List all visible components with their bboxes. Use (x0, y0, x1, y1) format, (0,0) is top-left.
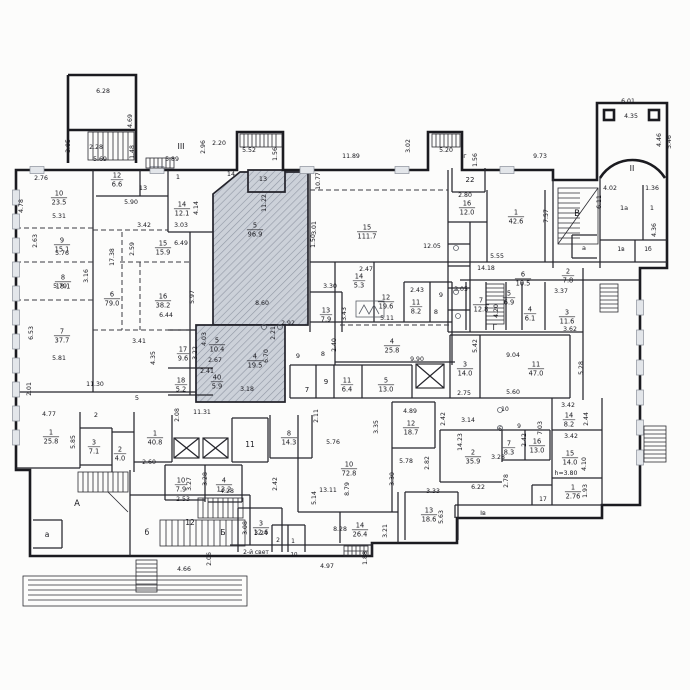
room-number-label: 4 (528, 306, 532, 314)
room-number-label: 7 (507, 440, 511, 448)
dimension-label: 2.92 (281, 320, 295, 327)
mark-label: Г (493, 323, 498, 332)
dimension-label: 2.21 (270, 326, 277, 340)
room-area-label: 6.4 (342, 385, 353, 393)
dimension-label: 3.28 (202, 472, 209, 486)
dimension-label: 14.23 (457, 433, 464, 451)
mark-label: А (74, 499, 80, 509)
dimension-label: 1.36 (645, 185, 659, 192)
room-area-label: 25.8 (385, 346, 400, 354)
room-number-label: 3 (259, 520, 263, 528)
room-number-label: 13 (322, 307, 330, 315)
room-area-label: 8.3 (504, 448, 515, 456)
room-number-label: 17 (179, 346, 187, 354)
mark-label: 22 (466, 176, 475, 184)
dimension-label: 4.14 (193, 201, 200, 215)
mark-label: 2-й свет (243, 549, 269, 556)
room-area-label: 26.4 (353, 530, 368, 538)
dimension-label: 2.08 (174, 408, 181, 422)
dimension-label: 3.42 (137, 222, 151, 229)
dimension-label: 2.47 (359, 266, 373, 273)
dimension-label: 12.05 (423, 243, 441, 250)
room-number-label: 8 (287, 430, 291, 438)
dimension-label: 4.36 (651, 223, 658, 237)
room-area-label: 15.9 (156, 248, 171, 256)
room-area-label: 4.0 (115, 454, 126, 462)
room-number-label: 8 (61, 274, 65, 282)
room-area-label: 9.6 (178, 354, 189, 362)
dimension-label: 5.20 (439, 147, 453, 154)
room-number-label: 1 (514, 209, 518, 217)
dimension-label: 6.53 (28, 326, 35, 340)
dimension-label: 11.31 (193, 409, 211, 416)
room-number-label: 2 (471, 449, 475, 457)
dimension-label: 5.46 (666, 135, 673, 149)
dimension-label: 3.35 (373, 420, 380, 434)
mark-label: 5 (135, 394, 139, 402)
stair-A-icon (78, 472, 128, 512)
dimension-label: 7.57 (543, 209, 550, 223)
dimension-label: 3.05 (65, 139, 72, 153)
room-area-label: 8.2 (411, 307, 422, 315)
mark-label: 8 (321, 350, 325, 358)
elevator-icon (174, 438, 199, 458)
dimension-label: 2.28 (89, 144, 103, 151)
mark-label: 13 (259, 175, 267, 183)
room-number-label: 15 (566, 450, 574, 458)
dimension-label: 3.16 (83, 269, 90, 283)
dimension-label: 3.42 (564, 433, 578, 440)
room-area-label: 19.5 (248, 361, 263, 369)
mark-label: 9 (439, 291, 443, 299)
mark-label: 1а (620, 204, 628, 212)
dimension-label: 2.53 (176, 496, 190, 503)
dimension-label: 9.90 (410, 356, 424, 363)
dimension-label: 4.35 (624, 113, 638, 120)
room-number-label: 14 (355, 273, 363, 281)
room-number-label: 14 (565, 412, 573, 420)
dimension-label: 4.69 (127, 114, 134, 128)
room-area-label: 72.8 (342, 469, 357, 477)
dimension-label: 6.70 (263, 349, 270, 363)
mark-label: Iг (461, 152, 467, 160)
dimension-label: 5.81 (52, 355, 66, 362)
room-area-label: 23.5 (52, 198, 67, 206)
mark-label: В (574, 209, 580, 219)
dimension-label: 4.10 (581, 457, 588, 471)
room-area-label: 42.6 (509, 217, 524, 225)
dimension-label: 4.35 (150, 351, 157, 365)
dimension-label: 3.30 (389, 472, 396, 486)
dimension-label: 13.11 (319, 487, 337, 494)
room-area-label: 38.2 (156, 301, 171, 309)
dimension-label: 1.88 (362, 551, 369, 565)
room-number-label: 10 (55, 190, 63, 198)
dimension-label: 4.02 (603, 185, 617, 192)
dimension-label: 2.44 (583, 412, 590, 426)
mark-label: Iв (480, 509, 486, 517)
dimension-label: 3.02 (405, 139, 412, 153)
room-number-label: 15 (363, 224, 371, 232)
dimension-label: 14.18 (477, 265, 495, 272)
dimension-label: 5.14 (311, 491, 318, 505)
room-number-label: 3 (92, 439, 96, 447)
dimension-label: 4.66 (177, 566, 191, 573)
dimension-label: 2.96 (200, 140, 207, 154)
room-number-label: 7 (60, 328, 64, 336)
stair-right-exterior-icon (644, 426, 666, 462)
dimension-label: 1.93 (582, 484, 589, 498)
mark-label: 12 (185, 518, 195, 527)
dimension-label: 4.28 (220, 488, 234, 495)
dimension-label: 8.79 (344, 482, 351, 496)
dimension-label: 4.89 (403, 408, 417, 415)
mark-label: 10 (501, 406, 509, 413)
mark-label: 17 (539, 496, 547, 503)
mark-label: 1 (650, 204, 654, 212)
dimension-label: 11.22 (261, 194, 268, 212)
dimension-label: 3.30 (323, 283, 337, 290)
room-number-label: 11 (412, 299, 420, 307)
room-area-label: 5.3 (354, 281, 365, 289)
room-number-label: 14 (178, 201, 186, 209)
dimension-label: 3.22 (192, 346, 199, 360)
mark-label: 9 (517, 423, 521, 430)
dimension-label: 2.43 (410, 287, 424, 294)
room-number-label: 6 (521, 271, 525, 279)
room-number-label: 40 (213, 374, 221, 382)
room-area-label: 6.1 (525, 314, 536, 322)
room-area-label: 13.0 (379, 385, 394, 393)
dimension-label: 6.44 (159, 312, 173, 319)
room-number-label: 9 (60, 237, 64, 245)
dimension-label: 3.21 (382, 524, 389, 538)
room-area-label: 2.76 (566, 492, 581, 500)
dimension-label: 7.03 (537, 421, 544, 435)
dimension-label: 2.80 (458, 192, 472, 199)
dimension-label: 5.89 (165, 156, 179, 163)
dimension-label: 3.05 (454, 286, 468, 293)
room-area-label: 35.9 (466, 457, 481, 465)
room-area-label: 47.0 (529, 369, 544, 377)
dimension-label: 5.78 (399, 458, 413, 465)
dimension-label: 2.11 (313, 409, 320, 423)
room-area-label: 37.7 (55, 336, 70, 344)
room-number-label: 3 (463, 361, 467, 369)
mark-label: а (582, 244, 586, 252)
mark-label: 1в (617, 246, 625, 253)
dimension-label: 5.11 (380, 315, 394, 322)
dimension-label: 4.03 (201, 332, 208, 346)
room-number-label: 5 (253, 222, 257, 230)
mark-label: 1 (176, 173, 180, 181)
dimension-label: 3.37 (554, 288, 568, 295)
dimension-label: 5.79 (53, 283, 67, 290)
dimension-label: 3.41 (132, 338, 146, 345)
dimension-label: 3.43 (341, 307, 348, 321)
mark-label: 6 (498, 426, 502, 433)
dimension-label: 3.28 (491, 454, 505, 461)
mark-label: б (145, 528, 150, 537)
room-area-label: 79.0 (105, 299, 120, 307)
room-area-label: 40.8 (148, 438, 163, 446)
dimension-label: 5.42 (472, 339, 479, 353)
dimension-label: 5.63 (438, 510, 445, 524)
room-number-label: 10 (345, 461, 353, 469)
room-number-label: 13 (425, 507, 433, 515)
mark-label: 2 (94, 411, 98, 419)
dimension-label: 6.11 (596, 195, 603, 209)
dimension-label: 8.60 (255, 300, 269, 307)
room-area-label: 12.0 (460, 208, 475, 216)
mark-label: 1б (644, 246, 652, 253)
room-area-label: 18.6 (422, 515, 437, 523)
stair-right-upper-icon (600, 284, 618, 312)
mark-label: III (177, 142, 184, 151)
room-area-label: 5.2 (176, 385, 187, 393)
elevator-icon (203, 438, 228, 458)
dimension-label: 11.89 (342, 153, 360, 160)
mark-label: 14 (227, 170, 235, 178)
dimension-label: 6.22 (471, 484, 485, 491)
room-area-label: 13.0 (530, 446, 545, 454)
dimension-label: 5.90 (124, 199, 138, 206)
dimension-label: 3.08 (242, 521, 249, 535)
dimension-label: 1.50 (310, 234, 317, 248)
dimension-label: h=3.80 (555, 470, 578, 477)
dimension-label: 5.55 (490, 253, 504, 260)
room-area-label: 12.1 (175, 209, 190, 217)
room-area-label: 111.7 (358, 232, 377, 240)
dimension-label: 6.49 (174, 240, 188, 247)
room-number-label: 5 (215, 337, 219, 345)
mark-label: 2 (276, 537, 280, 544)
room-number-label: 16 (533, 438, 541, 446)
entry-steps-icon (240, 134, 282, 147)
room-number-label: 11 (532, 361, 540, 369)
room-number-label: 11 (343, 377, 351, 385)
dimension-label: 5.76 (326, 439, 340, 446)
room-area-label: 11.6 (560, 317, 575, 325)
porch-pillar (649, 110, 659, 120)
room-area-label: 18.7 (404, 428, 419, 436)
room-area-label: 14.0 (458, 369, 473, 377)
room-area-label: 10.4 (210, 345, 225, 353)
dimension-label: 5.60 (506, 389, 520, 396)
room-number-label: 5 (507, 290, 511, 298)
dimension-label: 1.48 (129, 145, 136, 159)
dimension-label: 2.63 (32, 234, 39, 248)
room-number-label: 16 (463, 200, 471, 208)
room-number-label: 1 (153, 430, 157, 438)
dimension-label: 3.03 (174, 222, 188, 229)
dimension-label: 10.77 (315, 172, 322, 190)
room-area-label: 7.1 (89, 447, 100, 455)
mark-label: 9 (296, 352, 300, 360)
mark-label: Б (220, 528, 225, 537)
room-number-label: 7 (479, 297, 483, 305)
mark-label: 9 (324, 378, 328, 386)
room-area-label: 19.6 (379, 302, 394, 310)
room-number-label: 3 (565, 309, 569, 317)
dimension-label: 2.59 (129, 242, 136, 256)
room-area-label: 7.8 (563, 276, 574, 284)
dimension-label: 5.97 (189, 290, 196, 304)
dimension-label: 3.24 (254, 530, 268, 537)
dimension-label: 5.69 (93, 156, 107, 163)
room-area-label: 7.9 (176, 485, 187, 493)
dimension-label: 11.30 (86, 381, 104, 388)
room-area-label: 7.9 (321, 315, 332, 323)
room-number-label: 14 (356, 522, 364, 530)
dimension-label: 2.20 (212, 140, 226, 147)
dimension-label: 9.04 (506, 352, 520, 359)
dimension-label: 4.20 (493, 304, 500, 318)
room-area-label: 25.8 (44, 437, 59, 445)
dimension-label: 3.14 (461, 417, 475, 424)
dimension-label: 2.42 (440, 412, 447, 426)
room-number-label: 16 (159, 293, 167, 301)
room-area-label: 14.0 (563, 458, 578, 466)
room-area-label: 5.9 (212, 382, 223, 390)
room-number-label: 18 (177, 377, 185, 385)
dimension-label: 5.31 (52, 213, 66, 220)
dimension-label: 3.33 (426, 488, 440, 495)
room-number-label: 12 (113, 172, 121, 180)
room-number-label: 12 (407, 420, 415, 428)
dimension-label: 2.42 (272, 477, 279, 491)
floor-plan-page: 1023.5915.1818.1737.7126.61412.11515.967… (0, 0, 690, 690)
room-number-label: 12 (382, 294, 390, 302)
room-number-label: 4 (222, 477, 226, 485)
mark-label: 7 (305, 386, 309, 394)
room-number-label: 6 (110, 291, 114, 299)
dimension-label: 2.78 (503, 474, 510, 488)
dimension-label: 2.06 (206, 552, 213, 566)
floor-plan-canvas: 1023.5915.1818.1737.7126.61412.11515.967… (0, 0, 690, 690)
room-area-label: 6.9 (504, 298, 515, 306)
dimension-label: 3.62 (563, 326, 577, 333)
dimension-label: 17.38 (109, 248, 116, 266)
stair-exterior-big-icon (23, 576, 247, 606)
dimension-label: 9.73 (533, 153, 547, 160)
dimension-label: 2.76 (34, 175, 48, 182)
stair-central-icon (160, 498, 245, 546)
room-number-label: 1 (571, 484, 575, 492)
dimension-label: 4.77 (42, 411, 56, 418)
room-area-label: 14.3 (282, 438, 297, 446)
dimension-label: 5.28 (578, 361, 585, 375)
dimension-label: 3.18 (240, 386, 254, 393)
room-number-label: 2 (118, 446, 122, 454)
dimension-label: 2.82 (424, 456, 431, 470)
stair-exterior-small-icon (136, 560, 157, 592)
room-number-label: 2 (566, 268, 570, 276)
dimension-label: 3.01 (311, 221, 318, 235)
entry-steps-icon (432, 134, 460, 147)
room-number-label: 4 (390, 338, 394, 346)
elevator-icon (416, 364, 444, 388)
dimension-label: 2.01 (26, 382, 33, 396)
dimension-label: 8.28 (333, 526, 347, 533)
dimension-label: 4.97 (320, 563, 334, 570)
dimension-label: 2.67 (208, 357, 222, 364)
dimension-label: 2.75 (457, 390, 471, 397)
dimension-label: 5.76 (55, 250, 69, 257)
dimension-label: 5.52 (242, 147, 256, 154)
mark-label: II (630, 164, 635, 173)
mark-label: 13 (139, 184, 147, 192)
dimension-label: 1.56 (472, 153, 479, 167)
dimension-label: 6.01 (621, 98, 635, 105)
dimension-label: 2.40 (331, 338, 338, 352)
dimension-label: 3.42 (561, 402, 575, 409)
room-area-label: 96.9 (248, 230, 263, 238)
dimension-label: 4.46 (656, 133, 663, 147)
dimension-label: 1.56 (272, 147, 279, 161)
mark-label: 1 (291, 538, 295, 545)
dimension-label: 2.42 (521, 433, 528, 447)
room-number-label: 5 (384, 377, 388, 385)
dimension-label: 2.60 (142, 459, 156, 466)
room-area-label: 12.8 (474, 305, 489, 313)
mark-label: а (45, 530, 50, 539)
dimension-label: 3.27 (186, 477, 193, 491)
room-area-label: 6.6 (112, 180, 123, 188)
mark-label: 10 (291, 552, 298, 558)
mark-label: 11 (245, 440, 255, 449)
mark-label: 8 (434, 308, 438, 316)
dimension-label: 6.28 (96, 88, 110, 95)
room-number-label: 15 (159, 240, 167, 248)
dimension-label: 5.85 (70, 435, 77, 449)
room-number-label: 1 (49, 429, 53, 437)
porch-pillar (604, 110, 614, 120)
room-area-label: 10.5 (516, 279, 531, 287)
room-area-label: 8.2 (564, 420, 575, 428)
room-number-label: 4 (253, 353, 257, 361)
room-number-label: 10 (177, 477, 185, 485)
dimension-label: 2.41 (200, 368, 214, 375)
dimension-label: 4.78 (18, 199, 25, 213)
